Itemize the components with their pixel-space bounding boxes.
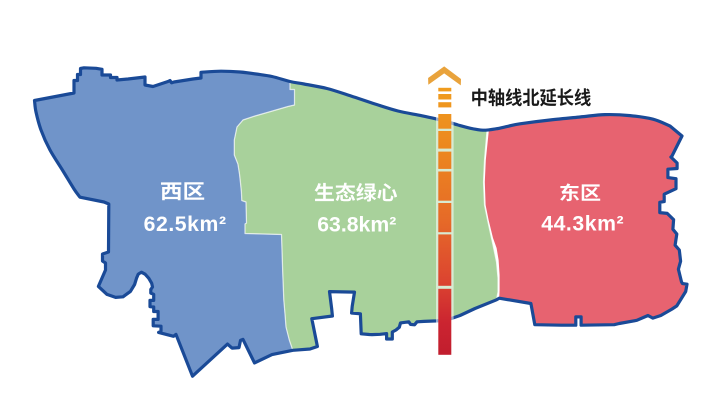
- svg-text:44.3km²: 44.3km²: [541, 212, 623, 235]
- svg-text:63.8km²: 63.8km²: [317, 214, 396, 237]
- svg-text:62.5km²: 62.5km²: [144, 213, 226, 236]
